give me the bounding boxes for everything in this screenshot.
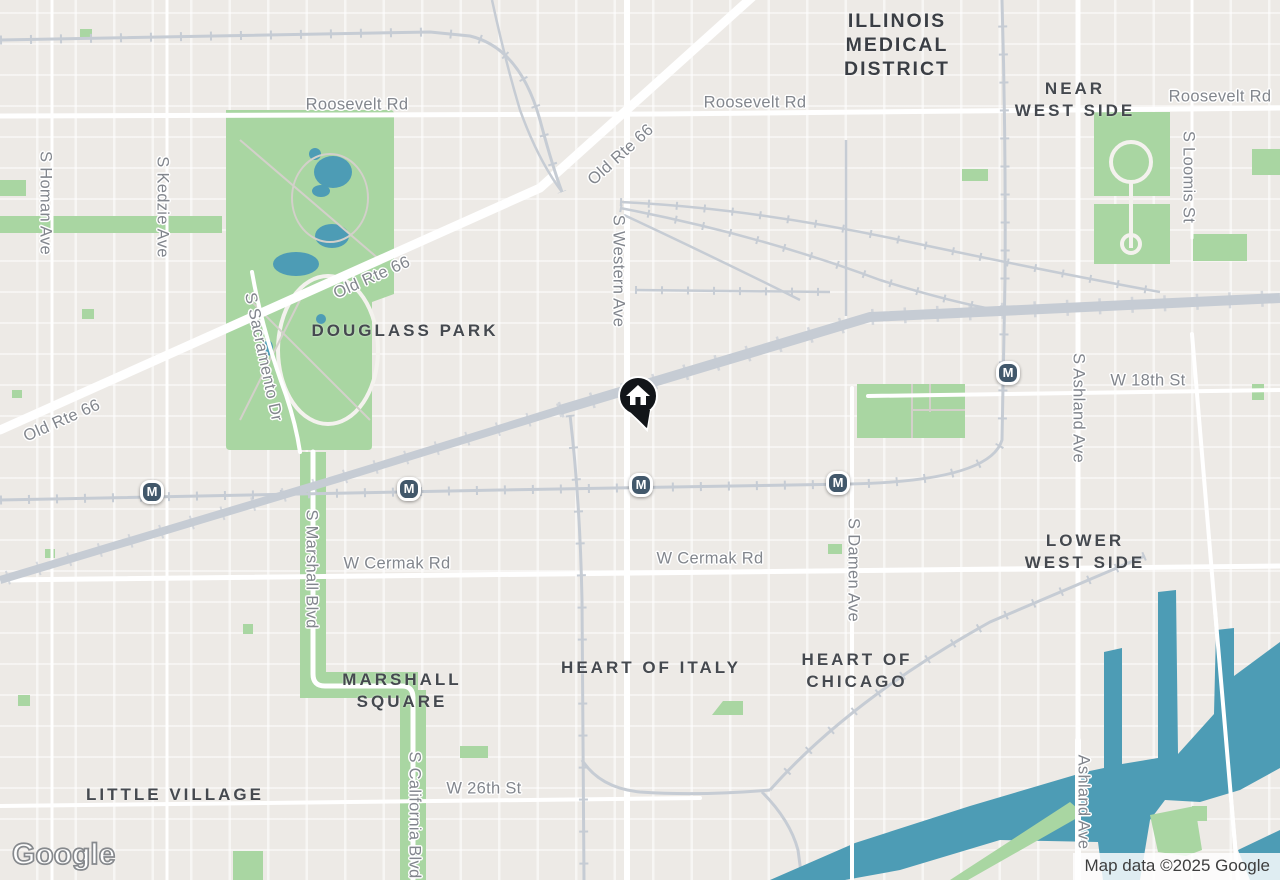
area-label-douglass-park: DOUGLASS PARK — [312, 320, 499, 342]
area-label-heart-of-italy: HEART OF ITALY — [561, 657, 741, 679]
road-label-california-blvd: S California Blvd — [405, 751, 424, 878]
road-label-loomis-st: S Loomis St — [1179, 131, 1198, 223]
road-label-roosevelt-west: Roosevelt Rd — [306, 96, 409, 115]
home-marker[interactable] — [616, 370, 662, 436]
road-label-roosevelt-east: Roosevelt Rd — [1169, 88, 1272, 107]
home-pin-icon — [616, 370, 662, 436]
road-label-kedzie-ave: S Kedzie Ave — [153, 156, 172, 257]
road-label-cermak-east: W Cermak Rd — [657, 550, 764, 569]
road-label-roosevelt-center: Roosevelt Rd — [704, 94, 807, 113]
road-label-marshall-blvd: S Marshall Blvd — [302, 509, 321, 628]
road-label-18th-st: W 18th St — [1110, 372, 1185, 391]
area-label-near-west-side: NEAR WEST SIDE — [1015, 78, 1136, 122]
google-logo[interactable]: Google — [12, 838, 115, 872]
area-label-lower-west-side: LOWER WEST SIDE — [1025, 530, 1146, 574]
area-label-heart-of-chicago: HEART OF CHICAGO — [802, 649, 913, 693]
marshall-california-blvd-road — [313, 452, 413, 880]
transit-station-marker[interactable]: M — [629, 473, 653, 497]
transit-station-marker[interactable]: M — [397, 477, 421, 501]
map-attribution: Map data ©2025 Google — [1073, 853, 1280, 880]
transit-station-marker[interactable]: M — [826, 471, 850, 495]
road-label-damen-ave: S Damen Ave — [844, 518, 863, 622]
transit-station-marker[interactable]: M — [140, 480, 164, 504]
road-label-ashland-ave-south: Ashland Ave — [1074, 755, 1093, 850]
road-label-26th-st: W 26th St — [446, 780, 521, 799]
road-label-cermak-west: W Cermak Rd — [344, 555, 451, 574]
area-label-little-village: LITTLE VILLAGE — [86, 784, 264, 806]
map-canvas[interactable]: Roosevelt Rd Roosevelt Rd Roosevelt Rd O… — [0, 0, 1280, 880]
area-label-illinois-medical-district: ILLINOIS MEDICAL DISTRICT — [844, 9, 950, 81]
road-label-homan-ave: S Homan Ave — [36, 151, 55, 255]
road-label-ashland-ave: S Ashland Ave — [1069, 353, 1088, 463]
area-label-marshall-square: MARSHALL SQUARE — [342, 669, 461, 713]
road-label-western-ave: S Western Ave — [609, 215, 628, 327]
parks-layer — [0, 29, 1280, 880]
transit-station-marker[interactable]: M — [996, 361, 1020, 385]
